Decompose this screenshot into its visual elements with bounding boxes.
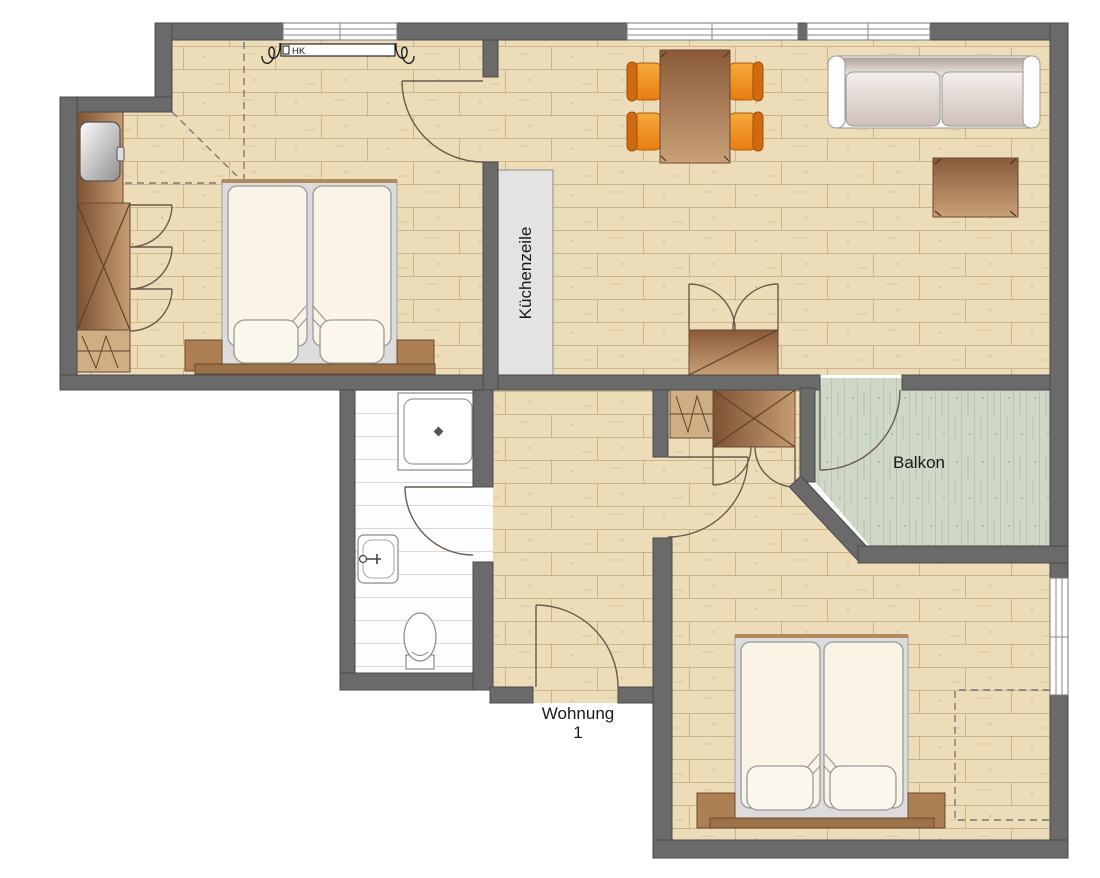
sofa-cushion	[846, 72, 940, 126]
pillow	[234, 320, 298, 363]
coffee-table	[933, 158, 1018, 217]
sofa-armrest	[828, 56, 845, 128]
floor-plan-drawing: Küchenzeile	[0, 0, 1100, 878]
balcony-label: Balkon	[893, 453, 945, 472]
sofa	[828, 56, 1040, 128]
mirror-handle	[117, 147, 124, 161]
threshold	[473, 487, 493, 562]
bed-board	[195, 364, 435, 374]
pillow	[320, 320, 384, 363]
chair	[728, 62, 763, 101]
bed-head-strip	[735, 634, 908, 638]
window	[283, 23, 397, 40]
bed-board	[710, 818, 934, 828]
floor-plan-page: Küchenzeile	[0, 0, 1100, 878]
mirror	[80, 122, 120, 181]
pillow	[830, 766, 896, 810]
chair	[728, 112, 763, 151]
window	[1050, 578, 1068, 695]
sink	[358, 535, 398, 583]
window	[627, 23, 798, 40]
radiator-label: HK	[292, 46, 306, 57]
chair	[627, 62, 662, 101]
window	[807, 23, 930, 40]
dining-table	[660, 50, 730, 163]
bed-head-strip	[222, 179, 397, 183]
sofa-armrest	[1023, 56, 1040, 128]
threshold	[533, 687, 618, 703]
pillow	[747, 766, 813, 810]
threshold	[483, 77, 498, 162]
shower	[398, 393, 478, 470]
double-bed-1	[185, 179, 435, 374]
sofa-cushion	[942, 72, 1036, 126]
threshold	[653, 457, 668, 538]
kitchen-unit: Küchenzeile	[498, 170, 553, 377]
toilet	[404, 613, 436, 669]
chair	[627, 112, 662, 151]
apartment-label-line1: Wohnung	[542, 704, 614, 723]
kitchen-unit-label: Küchenzeile	[516, 227, 535, 320]
apartment-label-line2: 1	[573, 723, 582, 742]
hallway-floor	[493, 390, 653, 687]
